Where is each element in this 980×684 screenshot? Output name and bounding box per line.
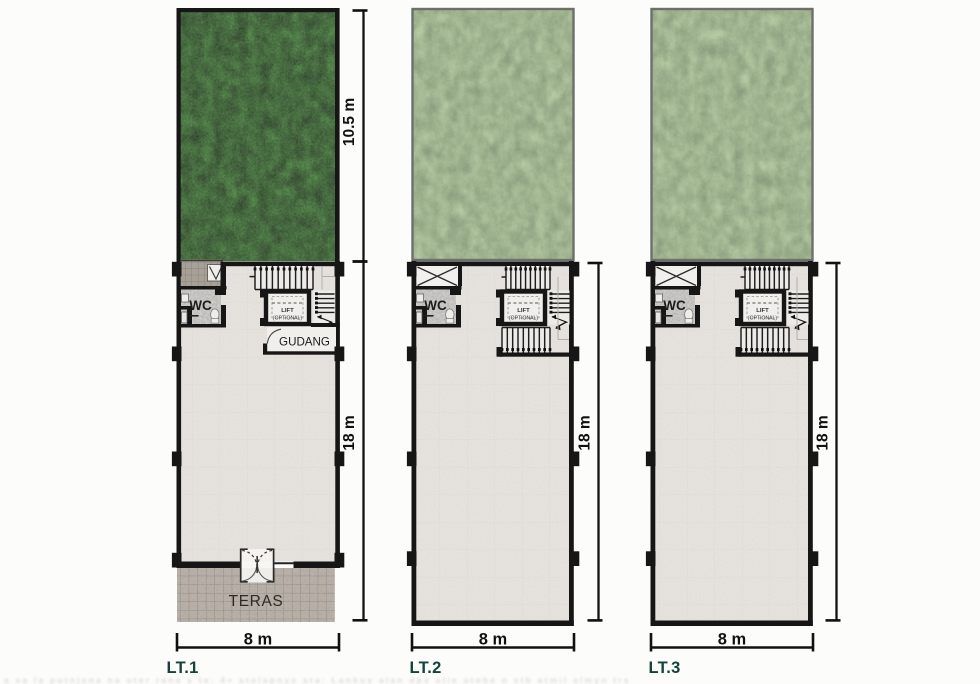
svg-text:LT.2: LT.2 [410,659,442,677]
svg-text:10.5 m: 10.5 m [341,98,358,146]
svg-text:8 m: 8 m [244,631,272,649]
svg-text:18 m: 18 m [577,415,594,450]
svg-text:8 m: 8 m [718,631,746,649]
svg-text:LIFT: LIFT [517,308,530,314]
svg-text:WC: WC [189,298,212,313]
svg-text:(OPTIONAL): (OPTIONAL) [509,316,538,322]
svg-text:LIFT: LIFT [281,308,294,314]
svg-text:LT.1: LT.1 [167,659,199,677]
svg-text:18 m: 18 m [341,415,358,450]
svg-text:WC: WC [663,298,686,313]
svg-text:(OPTIONAL): (OPTIONAL) [748,316,777,322]
svg-text:18 m: 18 m [815,415,832,450]
svg-text:LIFT: LIFT [756,308,769,314]
svg-text:GUDANG: GUDANG [279,336,330,349]
svg-text:(OPTIONAL): (OPTIONAL) [273,316,302,322]
svg-text:WC: WC [424,298,447,313]
svg-text:LT.3: LT.3 [649,659,681,677]
svg-text:TERAS: TERAS [229,593,284,610]
svg-text:a sa la putnjena na uter rana: a sa la putnjena na uter rana s ta: 4+ a… [4,675,631,684]
svg-text:8 m: 8 m [479,631,507,649]
